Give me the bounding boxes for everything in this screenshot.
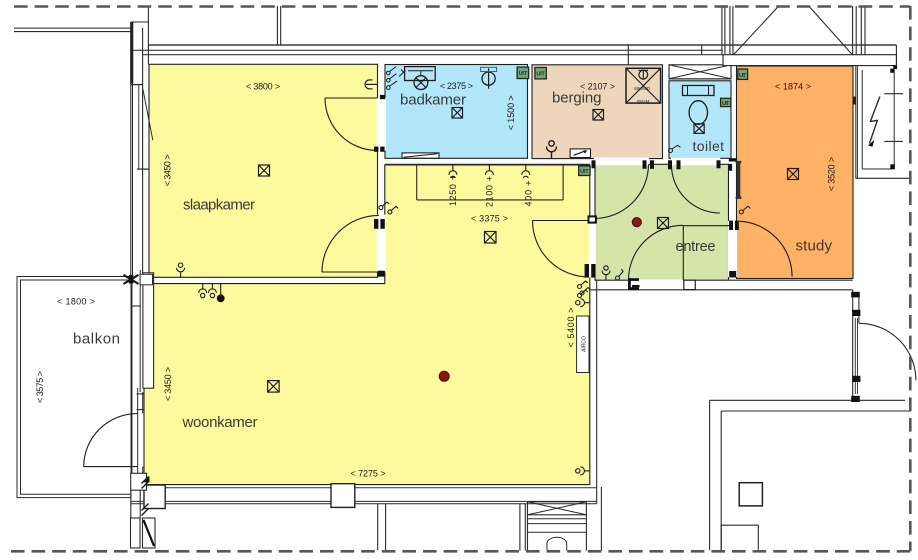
svg-text:< 1800 >: < 1800 > xyxy=(57,296,95,306)
svg-text:UIT: UIT xyxy=(722,101,730,107)
svg-text:entree: entree xyxy=(676,239,716,255)
svg-text:< 5400 >: < 5400 > xyxy=(566,308,576,348)
svg-text:< 2107 >: < 2107 > xyxy=(580,82,615,92)
svg-text:< 7275 >: < 7275 > xyxy=(351,469,386,479)
svg-text:< 3375 >: < 3375 > xyxy=(471,214,508,224)
svg-text:< 3450 >: < 3450 > xyxy=(163,367,173,401)
svg-text:< 3575 >: < 3575 > xyxy=(35,371,45,403)
svg-text:WM/WD: WM/WD xyxy=(634,86,650,91)
svg-text:study: study xyxy=(796,238,833,255)
svg-text:UIT: UIT xyxy=(519,71,528,77)
svg-text:AIRCO: AIRCO xyxy=(582,336,588,352)
svg-text:woonkamer: woonkamer xyxy=(182,414,258,431)
svg-text:toilet: toilet xyxy=(693,138,725,154)
svg-text:< 3800 >: < 3800 > xyxy=(246,82,280,92)
svg-text:1250 +: 1250 + xyxy=(448,175,458,206)
svg-text:UIT: UIT xyxy=(739,73,747,79)
svg-text:badkamer: badkamer xyxy=(400,92,466,109)
svg-text:WasM: WasM xyxy=(637,99,650,104)
svg-text:slaapkamer: slaapkamer xyxy=(183,197,255,214)
svg-text:400 +: 400 + xyxy=(523,181,533,207)
svg-text:< 3520 >: < 3520 > xyxy=(827,157,837,191)
svg-text:< 1874 >: < 1874 > xyxy=(775,82,811,92)
svg-text:balkon: balkon xyxy=(73,331,120,348)
svg-text:< 3450 >: < 3450 > xyxy=(163,154,173,186)
svg-text:UIT: UIT xyxy=(536,72,545,78)
svg-text:berging: berging xyxy=(552,90,602,107)
svg-text:< 2375 >: < 2375 > xyxy=(440,81,473,91)
svg-text:2100 +: 2100 + xyxy=(484,176,494,207)
svg-text:< 1500 >: < 1500 > xyxy=(506,95,516,130)
svg-text:UIT: UIT xyxy=(580,169,589,175)
